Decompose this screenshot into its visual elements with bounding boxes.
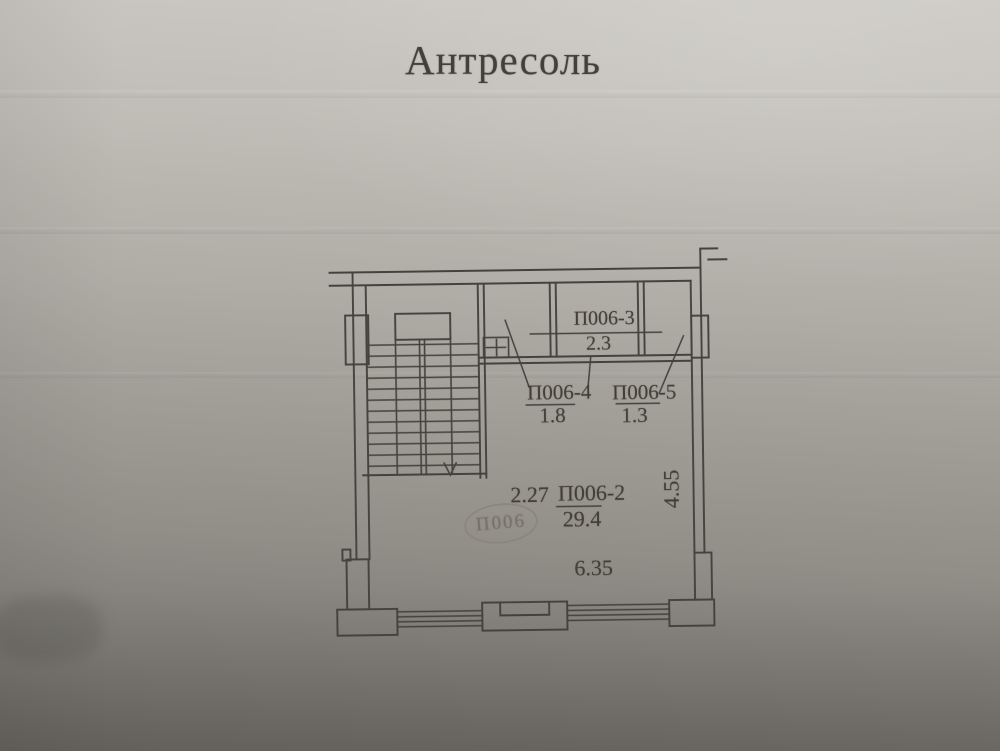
room-id-label: П006-3 [573, 307, 634, 331]
floor-plan-drawing [327, 247, 733, 653]
walls [329, 249, 712, 610]
dimension-label: 6.35 [574, 555, 613, 582]
room-id-label: П006-4 [527, 380, 592, 406]
room-area-label: 1.8 [539, 403, 566, 428]
paper-crease [0, 90, 1000, 98]
room-area-label: 2.3 [586, 332, 611, 355]
dimension-label: 2.27 [510, 482, 549, 509]
photo-background: Антресоль [0, 0, 1000, 751]
room-id-label: П006-2 [558, 480, 626, 507]
room-area-label: 29.4 [563, 506, 602, 533]
balcony-door-leaf [500, 602, 549, 616]
window-wall [337, 599, 714, 635]
staircase [361, 284, 487, 480]
bleed-through-mark [0, 593, 104, 665]
stamp-text: П006 [475, 510, 527, 536]
shaft-cross-symbol [483, 337, 508, 357]
drawing-title: Антресоль [405, 36, 601, 84]
balcony-door-block [482, 601, 567, 630]
paper-crease [0, 227, 1000, 234]
dimension-label: 4.55 [658, 470, 685, 509]
wall-break-mark [700, 248, 727, 259]
floor-plan: П006-3 2.3 П006-4 1.8 П006-5 1.3 П006-2 … [327, 247, 733, 653]
room-id-label: П006-5 [612, 379, 677, 405]
room-area-label: 1.3 [621, 403, 648, 428]
